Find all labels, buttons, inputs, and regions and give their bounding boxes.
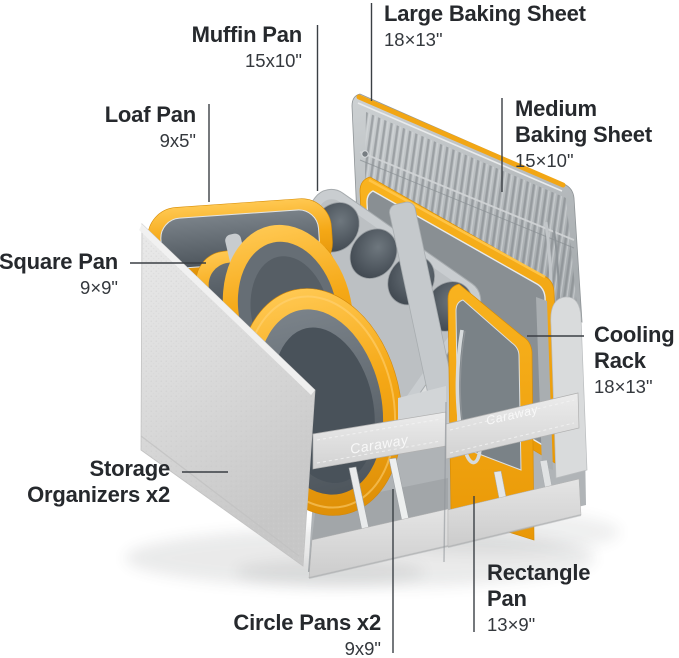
right-organizer-end-wall (551, 297, 587, 478)
callout-storage-organizers: StorageOrganizers x2 (27, 456, 170, 508)
callout-cooling-rack: CoolingRack 18×13" (594, 322, 674, 396)
callout-dims: 18×13" (384, 30, 586, 49)
callout-name: StorageOrganizers x2 (27, 456, 170, 508)
callout-name: MediumBaking Sheet (515, 96, 652, 148)
callout-medium-baking-sheet: MediumBaking Sheet 15×10" (515, 96, 652, 170)
callout-name: Large Baking Sheet (384, 1, 586, 27)
callout-dims: 9×9" (0, 278, 118, 297)
callout-dims: 9x5" (105, 131, 196, 150)
callout-name: Loaf Pan (105, 102, 196, 128)
product-diagram: Caraway Caraway Large Ba (0, 0, 679, 658)
callout-name: Circle Pans x2 (233, 610, 381, 636)
callout-muffin-pan: Muffin Pan 15x10" (192, 22, 302, 70)
callout-dims: 13×9" (487, 615, 590, 634)
callout-name: CoolingRack (594, 322, 674, 374)
callout-dims: 9x9" (233, 639, 381, 658)
callout-name: Square Pan (0, 249, 118, 275)
callout-loaf-pan: Loaf Pan 9x5" (105, 102, 196, 150)
callout-dims: 18×13" (594, 377, 674, 396)
callout-dims: 15×10" (515, 151, 652, 170)
callout-name: Muffin Pan (192, 22, 302, 48)
callout-circle-pans: Circle Pans x2 9x9" (233, 610, 381, 658)
callout-large-baking-sheet: Large Baking Sheet 18×13" (384, 1, 586, 49)
callout-square-pan: Square Pan 9×9" (0, 249, 118, 297)
callout-rectangle-pan: RectanglePan 13×9" (487, 560, 590, 634)
callout-name: RectanglePan (487, 560, 590, 612)
callout-dims: 15x10" (192, 51, 302, 70)
